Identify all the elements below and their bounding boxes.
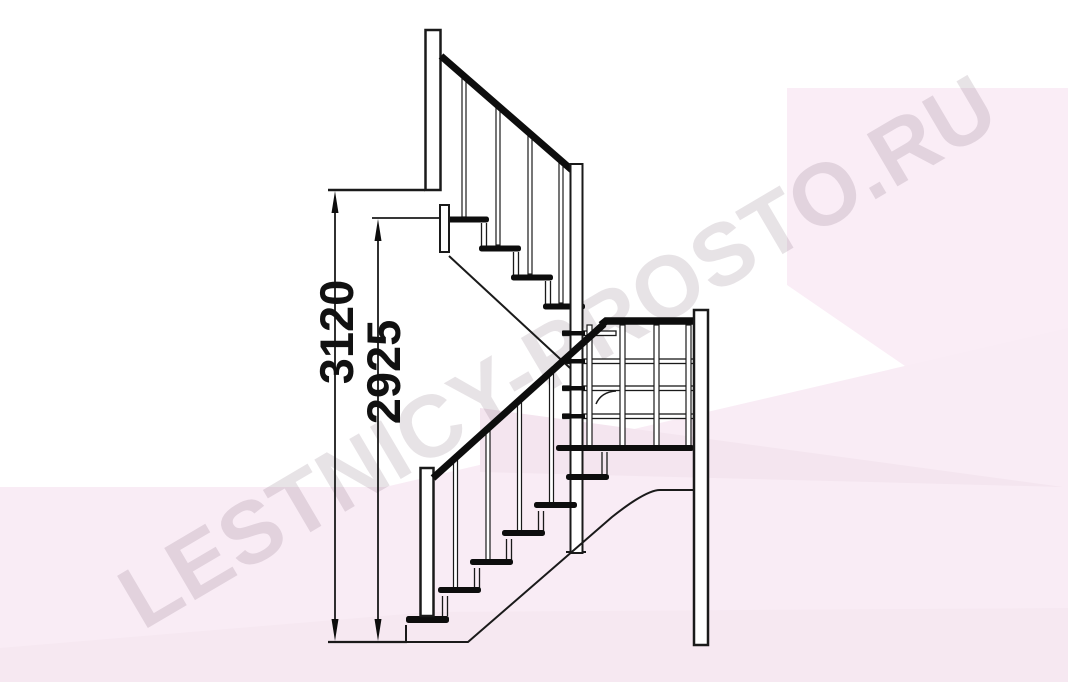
middle-post: [571, 164, 583, 553]
staircase-drawing: 3120 2925: [0, 0, 1068, 682]
winder-bottom-tread: [556, 445, 694, 451]
arrow-down-3120: [332, 619, 339, 641]
lower-flight: [406, 324, 694, 642]
right-post: [694, 310, 708, 645]
drawing-canvas: LESTNICY-PROSTO.RU: [0, 0, 1068, 682]
upper-treads: [447, 217, 585, 310]
arrow-up-3120: [332, 191, 339, 213]
arrow-down-2925: [375, 619, 382, 641]
upper-step-supports: [482, 223, 551, 304]
upper-newel-post: [426, 30, 441, 190]
winder-handrail: [601, 321, 694, 325]
upper-bracket: [440, 205, 449, 252]
upper-stringer-edge: [449, 256, 570, 368]
lower-newel-post: [421, 468, 434, 616]
upper-flight: [328, 30, 585, 368]
dimension-3120: 3120: [310, 191, 363, 641]
winder-section: [556, 164, 708, 645]
upper-balusters: [462, 76, 563, 303]
lower-stringer-outline: [406, 490, 694, 642]
arrow-up-2925: [375, 219, 382, 241]
dimension-label-2925: 2925: [357, 320, 410, 425]
dimension-label-3120: 3120: [310, 280, 363, 385]
winder-nosing-arc: [596, 391, 616, 404]
upper-handrail: [441, 56, 573, 171]
lower-balusters: [454, 371, 554, 588]
dimension-2925: 2925: [357, 219, 410, 641]
